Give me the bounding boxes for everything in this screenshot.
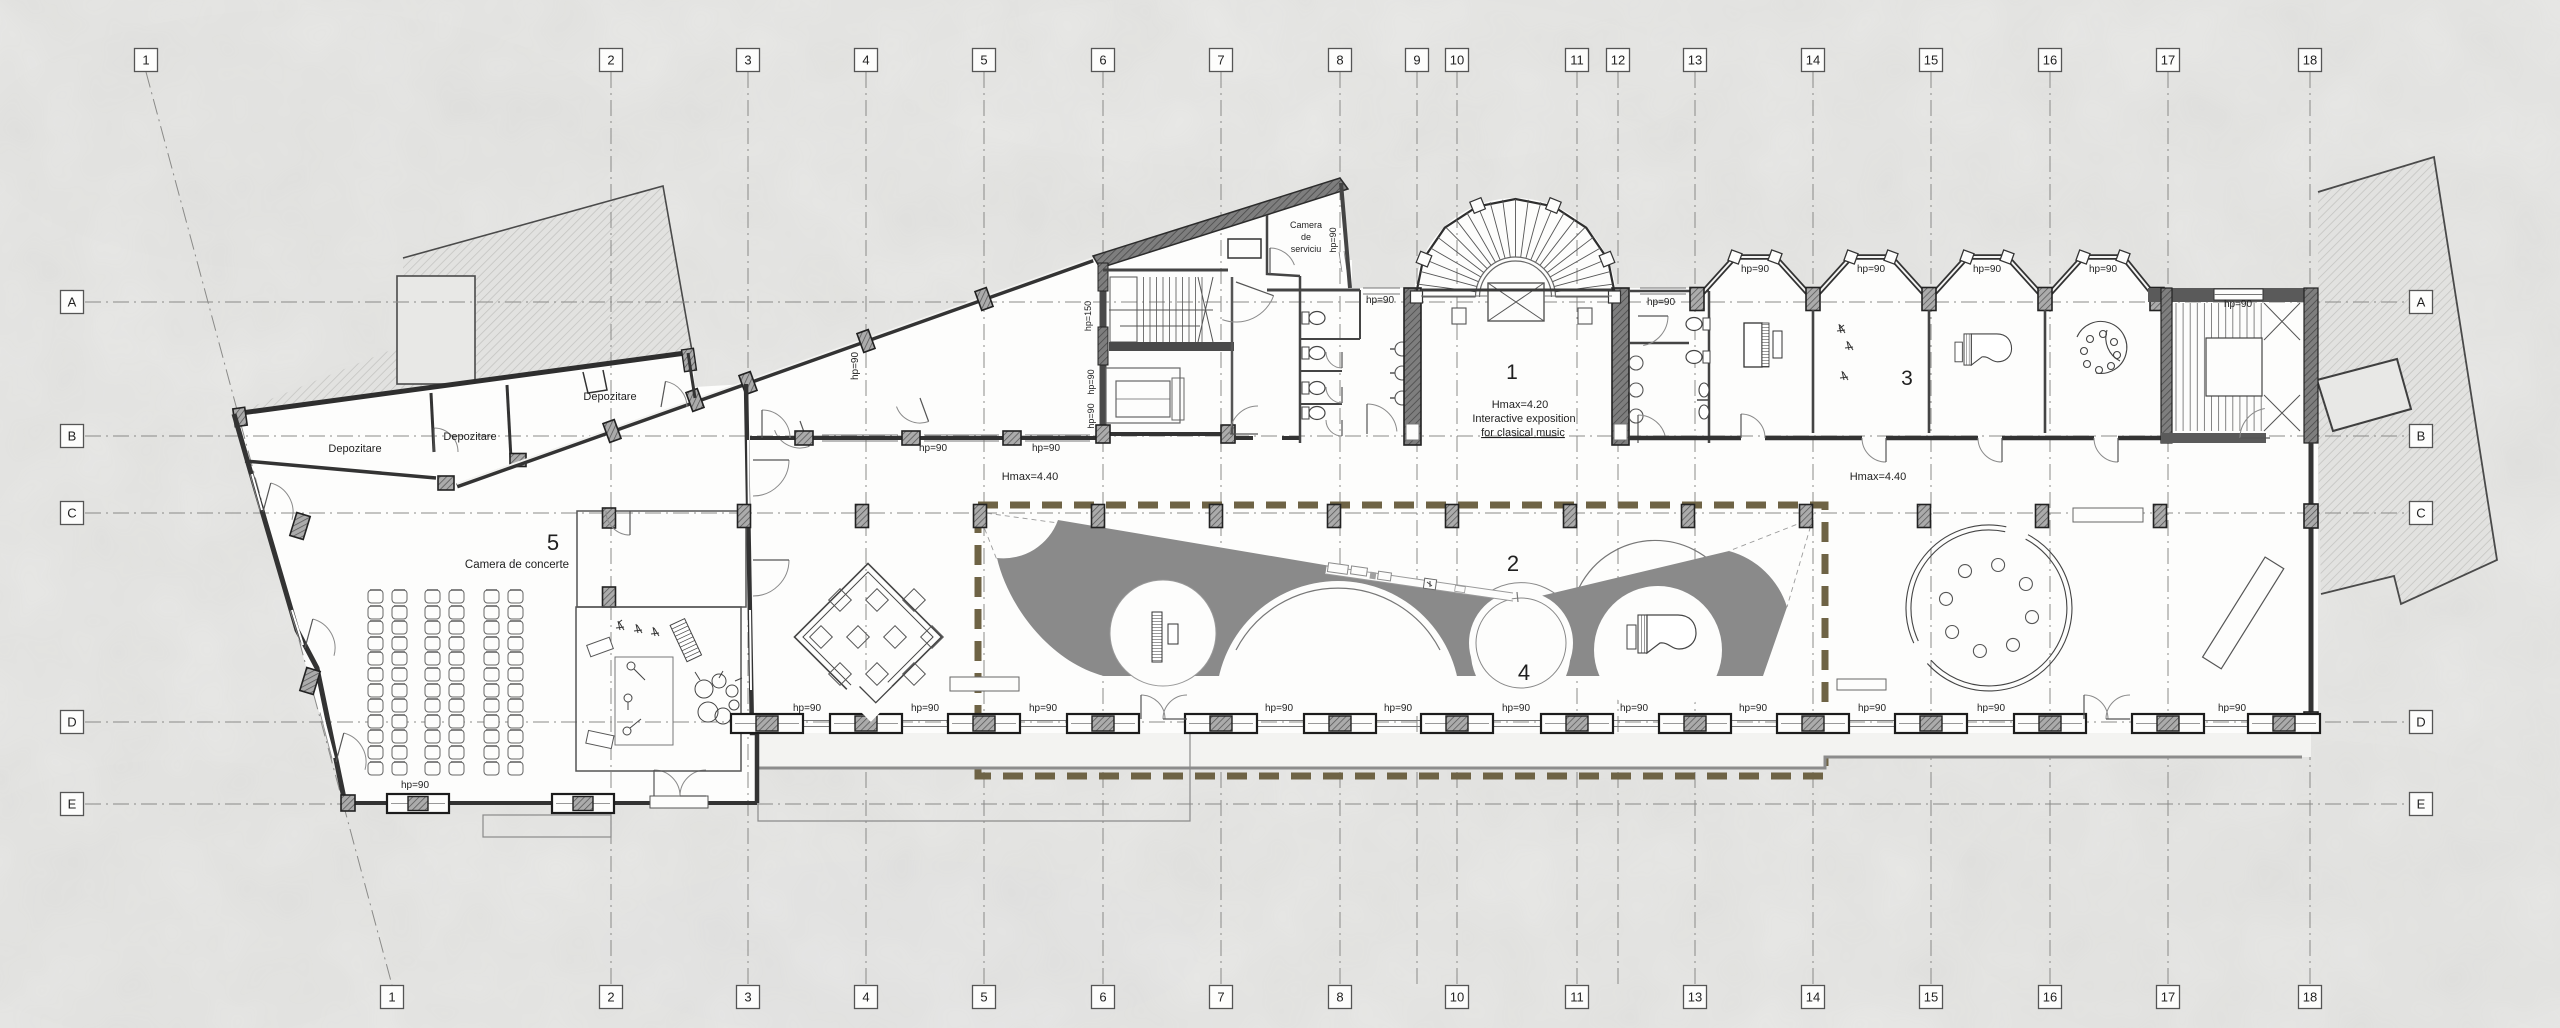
svg-text:hp=90: hp=90 <box>1973 264 2002 275</box>
svg-text:E: E <box>68 797 77 812</box>
svg-text:6: 6 <box>1099 53 1106 68</box>
svg-text:hp=90: hp=90 <box>1502 703 1531 714</box>
svg-text:D: D <box>2416 715 2425 730</box>
svg-text:16: 16 <box>2043 990 2057 1005</box>
svg-text:E: E <box>2417 797 2426 812</box>
svg-text:4: 4 <box>1518 660 1530 685</box>
svg-text:3: 3 <box>1901 367 1913 390</box>
svg-text:2: 2 <box>607 53 614 68</box>
svg-text:18: 18 <box>2303 53 2317 68</box>
svg-text:de: de <box>1301 232 1311 242</box>
svg-text:3: 3 <box>744 53 751 68</box>
svg-text:hp=90: hp=90 <box>1741 264 1770 275</box>
svg-text:Depozitare: Depozitare <box>443 431 496 443</box>
svg-text:2: 2 <box>607 990 614 1005</box>
svg-text:hp=90: hp=90 <box>1265 703 1294 714</box>
svg-text:11: 11 <box>1570 990 1584 1005</box>
svg-text:hp=90: hp=90 <box>2218 703 2247 714</box>
svg-text:hp=90: hp=90 <box>1384 703 1413 714</box>
svg-text:17: 17 <box>2161 53 2175 68</box>
svg-text:Depozitare: Depozitare <box>328 443 381 455</box>
svg-text:hp=90: hp=90 <box>793 703 822 714</box>
svg-text:Depozitare: Depozitare <box>583 391 636 403</box>
svg-text:Hmax=4.40: Hmax=4.40 <box>1002 471 1059 483</box>
svg-text:B: B <box>2417 429 2426 444</box>
svg-text:hp=90: hp=90 <box>1086 403 1096 428</box>
svg-text:Camera de concerte: Camera de concerte <box>465 559 569 571</box>
svg-text:5: 5 <box>980 53 987 68</box>
svg-text:C: C <box>2416 506 2425 521</box>
svg-text:hp=90: hp=90 <box>850 352 861 381</box>
svg-text:8: 8 <box>1336 53 1343 68</box>
svg-text:hp=90: hp=90 <box>1366 295 1395 306</box>
svg-text:Interactive exposition: Interactive exposition <box>1472 413 1575 425</box>
svg-text:12: 12 <box>1611 53 1625 68</box>
svg-text:8: 8 <box>1336 990 1343 1005</box>
svg-text:hp=90: hp=90 <box>911 703 940 714</box>
svg-text:5: 5 <box>547 530 559 555</box>
svg-text:hp=90: hp=90 <box>1647 297 1676 308</box>
svg-text:serviciu: serviciu <box>1291 244 1322 254</box>
svg-text:7: 7 <box>1217 990 1224 1005</box>
svg-text:Hmax=4.40: Hmax=4.40 <box>1850 471 1907 483</box>
svg-text:Hmax=4.20: Hmax=4.20 <box>1492 399 1549 411</box>
svg-text:hp=90: hp=90 <box>2224 299 2253 310</box>
svg-text:B: B <box>68 429 77 444</box>
svg-text:hp=90: hp=90 <box>1032 443 1061 454</box>
svg-text:10: 10 <box>1450 990 1464 1005</box>
svg-text:5: 5 <box>980 990 987 1005</box>
svg-text:6: 6 <box>1099 990 1106 1005</box>
svg-text:1: 1 <box>388 990 395 1005</box>
svg-text:hp=90: hp=90 <box>2089 264 2118 275</box>
svg-text:3: 3 <box>744 990 751 1005</box>
svg-text:10: 10 <box>1450 53 1464 68</box>
svg-text:9: 9 <box>1413 53 1420 68</box>
svg-text:hp=90: hp=90 <box>1858 703 1887 714</box>
svg-text:hp=90: hp=90 <box>1977 703 2006 714</box>
svg-text:for clasical music: for clasical music <box>1481 427 1565 439</box>
svg-text:hp=90: hp=90 <box>1328 227 1338 252</box>
svg-text:hp=90: hp=90 <box>1739 703 1768 714</box>
svg-text:7: 7 <box>1217 53 1224 68</box>
svg-text:hp=90: hp=90 <box>1086 369 1096 394</box>
svg-text:hp=90: hp=90 <box>401 780 430 791</box>
svg-text:hp=90: hp=90 <box>1029 703 1058 714</box>
svg-text:2: 2 <box>1507 551 1519 576</box>
svg-text:4: 4 <box>862 53 869 68</box>
svg-text:14: 14 <box>1806 990 1820 1005</box>
svg-text:1: 1 <box>1506 361 1518 384</box>
svg-text:11: 11 <box>1570 53 1584 68</box>
svg-text:15: 15 <box>1924 990 1938 1005</box>
svg-text:4: 4 <box>862 990 869 1005</box>
svg-text:C: C <box>67 506 76 521</box>
svg-text:16: 16 <box>2043 53 2057 68</box>
svg-text:A: A <box>2417 295 2426 310</box>
svg-text:18: 18 <box>2303 990 2317 1005</box>
svg-text:hp=90: hp=90 <box>1620 703 1649 714</box>
svg-text:1: 1 <box>142 53 149 68</box>
svg-text:hp=150: hp=150 <box>1083 301 1093 331</box>
svg-text:14: 14 <box>1806 53 1820 68</box>
svg-text:13: 13 <box>1688 53 1702 68</box>
svg-text:hp=90: hp=90 <box>919 443 948 454</box>
svg-text:A: A <box>68 295 77 310</box>
svg-text:17: 17 <box>2161 990 2175 1005</box>
svg-text:hp=90: hp=90 <box>1857 264 1886 275</box>
svg-text:Camera: Camera <box>1290 220 1322 230</box>
svg-text:15: 15 <box>1924 53 1938 68</box>
svg-text:D: D <box>67 715 76 730</box>
svg-text:13: 13 <box>1688 990 1702 1005</box>
